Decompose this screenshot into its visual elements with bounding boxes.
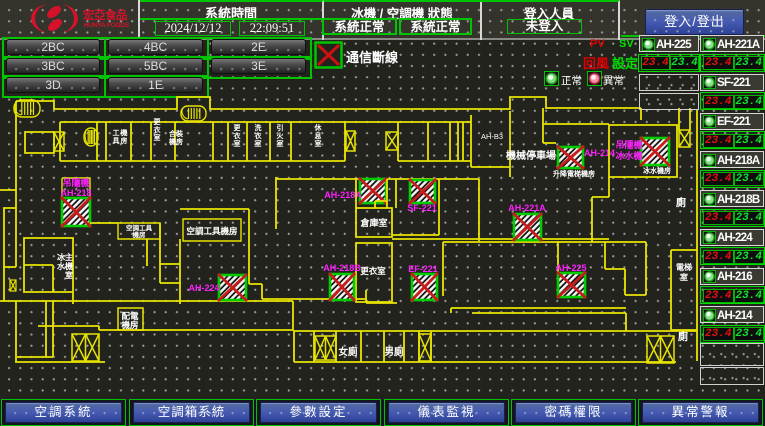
svg-text:機房: 機房 bbox=[121, 320, 138, 330]
svg-text:機械停車場: 機械停車場 bbox=[506, 149, 556, 162]
svg-text:室: 室 bbox=[65, 270, 73, 280]
svg-text:室: 室 bbox=[277, 139, 284, 148]
svg-text:冰水機: 冰水機 bbox=[615, 150, 642, 161]
svg-text:吊隱機: 吊隱機 bbox=[615, 139, 642, 150]
svg-text:機: 機 bbox=[121, 128, 128, 137]
svg-text:AH-225: AH-225 bbox=[555, 263, 586, 273]
svg-text:AH-218: AH-218 bbox=[60, 188, 91, 198]
svg-text:室: 室 bbox=[315, 139, 322, 148]
svg-text:工: 工 bbox=[113, 129, 120, 137]
svg-text:衣: 衣 bbox=[255, 131, 263, 140]
svg-text:更衣室: 更衣室 bbox=[360, 266, 386, 276]
svg-text:室: 室 bbox=[680, 272, 688, 282]
svg-text:AH-218B: AH-218B bbox=[323, 263, 361, 273]
svg-text:室: 室 bbox=[234, 139, 241, 148]
svg-text:男廁: 男廁 bbox=[384, 346, 404, 358]
svg-text:SF-221: SF-221 bbox=[407, 203, 437, 213]
svg-text:合裝: 合裝 bbox=[168, 129, 184, 138]
svg-text:AH-B3: AH-B3 bbox=[481, 132, 503, 141]
svg-text:洗: 洗 bbox=[255, 123, 262, 132]
svg-text:室: 室 bbox=[255, 139, 262, 148]
svg-text:AH-221A: AH-221A bbox=[508, 203, 546, 213]
svg-text:房: 房 bbox=[121, 136, 128, 145]
svg-text:更: 更 bbox=[154, 118, 162, 126]
svg-text:機房: 機房 bbox=[133, 230, 147, 239]
svg-text:火: 火 bbox=[277, 132, 285, 140]
svg-text:AH-224: AH-224 bbox=[188, 283, 219, 293]
svg-text:升降電梯機房: 升降電梯機房 bbox=[553, 169, 595, 178]
svg-text:廁: 廁 bbox=[678, 330, 688, 343]
svg-text:機房: 機房 bbox=[169, 137, 183, 146]
svg-text:AH-214: AH-214 bbox=[584, 148, 615, 158]
svg-text:息: 息 bbox=[315, 131, 322, 140]
svg-text:休: 休 bbox=[314, 123, 323, 132]
svg-text:更: 更 bbox=[234, 124, 242, 132]
svg-text:電梯: 電梯 bbox=[676, 262, 692, 272]
svg-text:女廁: 女廁 bbox=[338, 346, 358, 358]
svg-text:機: 機 bbox=[65, 261, 73, 271]
svg-text:空調工具: 空調工具 bbox=[126, 223, 153, 232]
svg-text:室: 室 bbox=[154, 133, 161, 142]
svg-text:衣: 衣 bbox=[234, 131, 242, 140]
svg-text:主: 主 bbox=[65, 252, 73, 262]
svg-text:引: 引 bbox=[277, 123, 284, 132]
svg-text:廁: 廁 bbox=[676, 196, 686, 209]
svg-text:空調工具機房: 空調工具機房 bbox=[186, 226, 237, 236]
svg-text:冰水機房: 冰水機房 bbox=[643, 166, 671, 175]
svg-text:EF-221: EF-221 bbox=[408, 264, 438, 274]
svg-text:倉庫室: 倉庫室 bbox=[359, 217, 387, 228]
svg-text:具: 具 bbox=[112, 136, 120, 145]
svg-text:衣: 衣 bbox=[154, 125, 162, 134]
svg-text:吊隱機: 吊隱機 bbox=[62, 177, 89, 188]
